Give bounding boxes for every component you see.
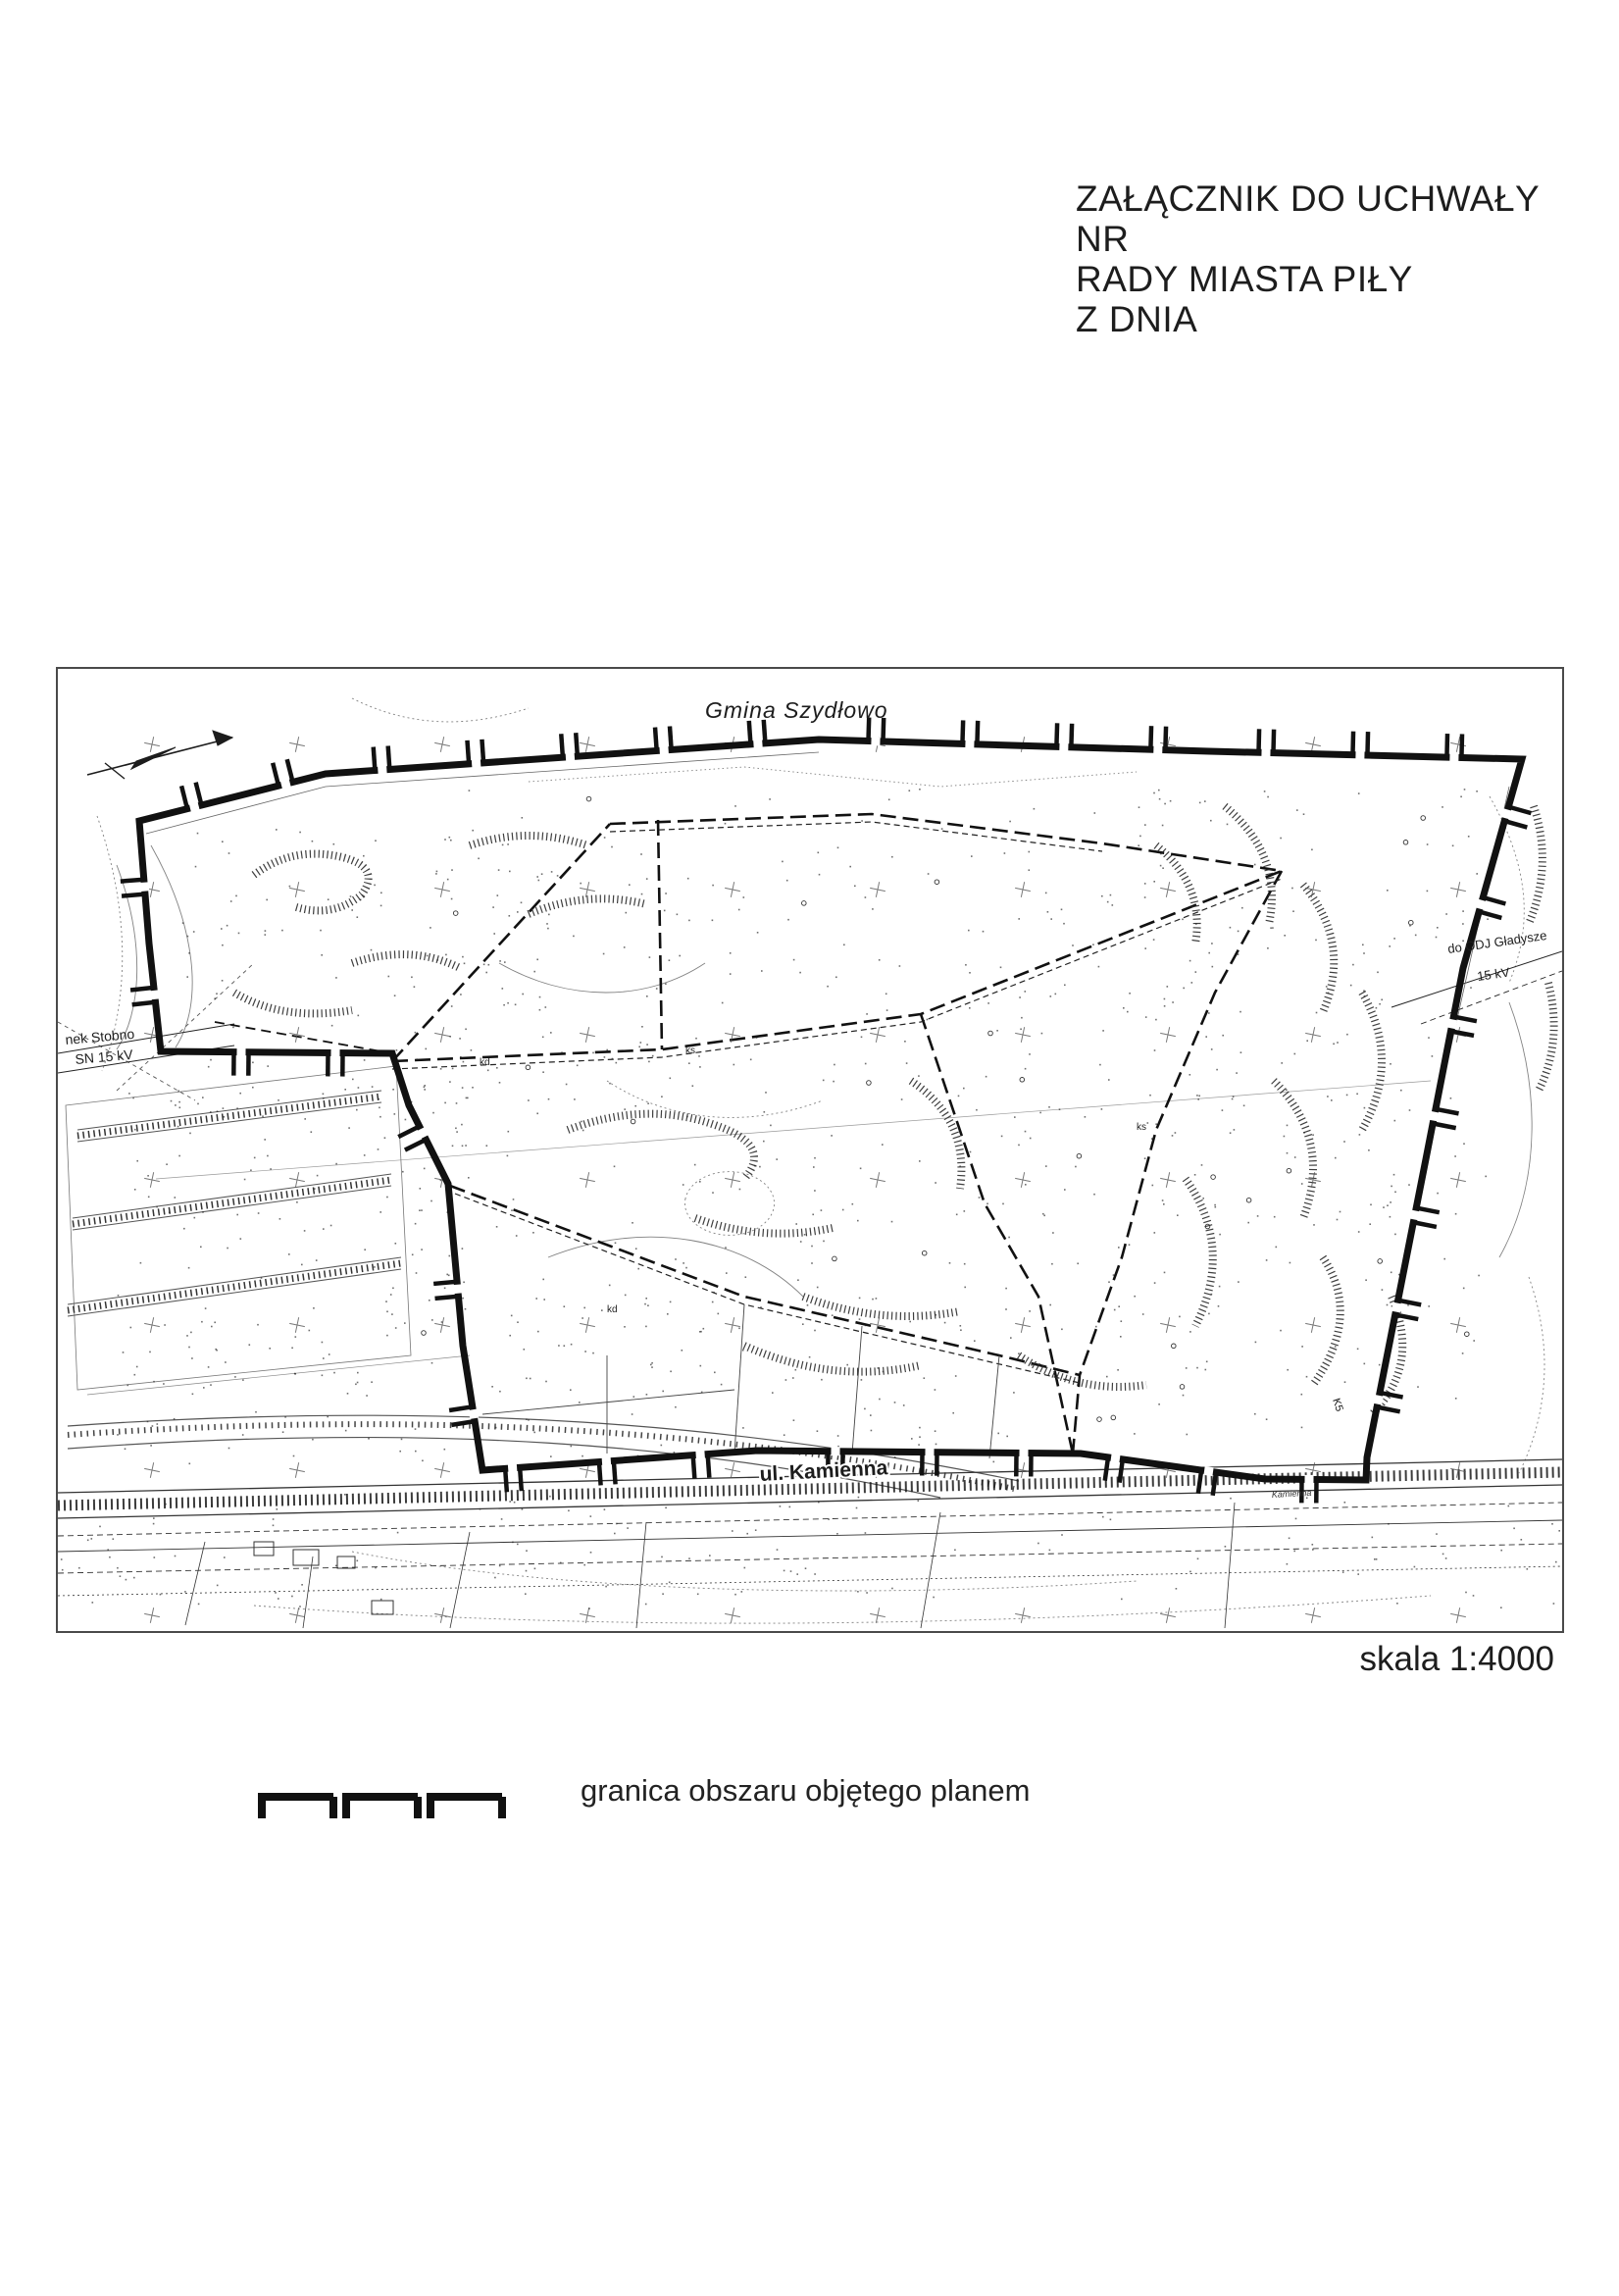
parcel-lines: [146, 752, 1509, 1458]
label-utility-ks-1: ks: [685, 1046, 695, 1056]
label-utility-kd-1: kd: [480, 1057, 490, 1068]
document-header: ZAŁĄCZNIK DO UCHWAŁY NR RADY MIASTA PIŁY…: [1076, 179, 1540, 339]
industrial-area: [58, 963, 1019, 1498]
plan-map: Gmina Szydłowo ul. Kamienna Kamienna nek…: [58, 669, 1562, 1631]
label-power-right-1: do ODJ Gładysze: [1446, 928, 1547, 956]
label-power-left-1: nek Stobno: [65, 1026, 135, 1047]
map-labels: Gmina Szydłowo ul. Kamienna Kamienna nek…: [65, 697, 1547, 1500]
north-arrow-icon: [87, 731, 232, 779]
map-detail-specks: [61, 789, 1560, 1609]
scale-label: skala 1:4000: [1360, 1640, 1554, 1679]
contour-lines: [97, 698, 1544, 1623]
legend-boundary-label: granica obszaru objętego planem: [581, 1773, 1030, 1809]
legend: granica obszaru objętego planem: [0, 1765, 1619, 1844]
header-line-1: ZAŁĄCZNIK DO UCHWAŁY: [1076, 179, 1540, 219]
label-utility-kd-2: kd: [607, 1304, 618, 1315]
label-utility-ks-2: ks: [1137, 1122, 1146, 1133]
plan-boundary: [121, 718, 1532, 1504]
slope-hatching: [234, 806, 1554, 1414]
header-line-3: RADY MIASTA PIŁY: [1076, 259, 1540, 299]
map-frame: Gmina Szydłowo ul. Kamienna Kamienna nek…: [56, 667, 1564, 1633]
header-line-2: NR: [1076, 219, 1540, 259]
label-power-right-2: 15 kV: [1476, 964, 1510, 984]
label-gmina-szydlowo: Gmina Szydłowo: [705, 697, 888, 723]
label-road-k5: K5: [1330, 1397, 1345, 1413]
label-street-kamienna-small: Kamienna: [1272, 1488, 1312, 1500]
label-street-kamienna: ul. Kamienna: [759, 1456, 888, 1486]
header-line-4: Z DNIA: [1076, 299, 1540, 339]
street-kamienna: [58, 1459, 1562, 1628]
plan-boundary-symbol-icon: [258, 1789, 509, 1822]
utility-lines: [58, 822, 1562, 1383]
planned-roads: [215, 814, 1282, 1454]
page: ZAŁĄCZNIK DO UCHWAŁY NR RADY MIASTA PIŁY…: [0, 0, 1619, 2296]
